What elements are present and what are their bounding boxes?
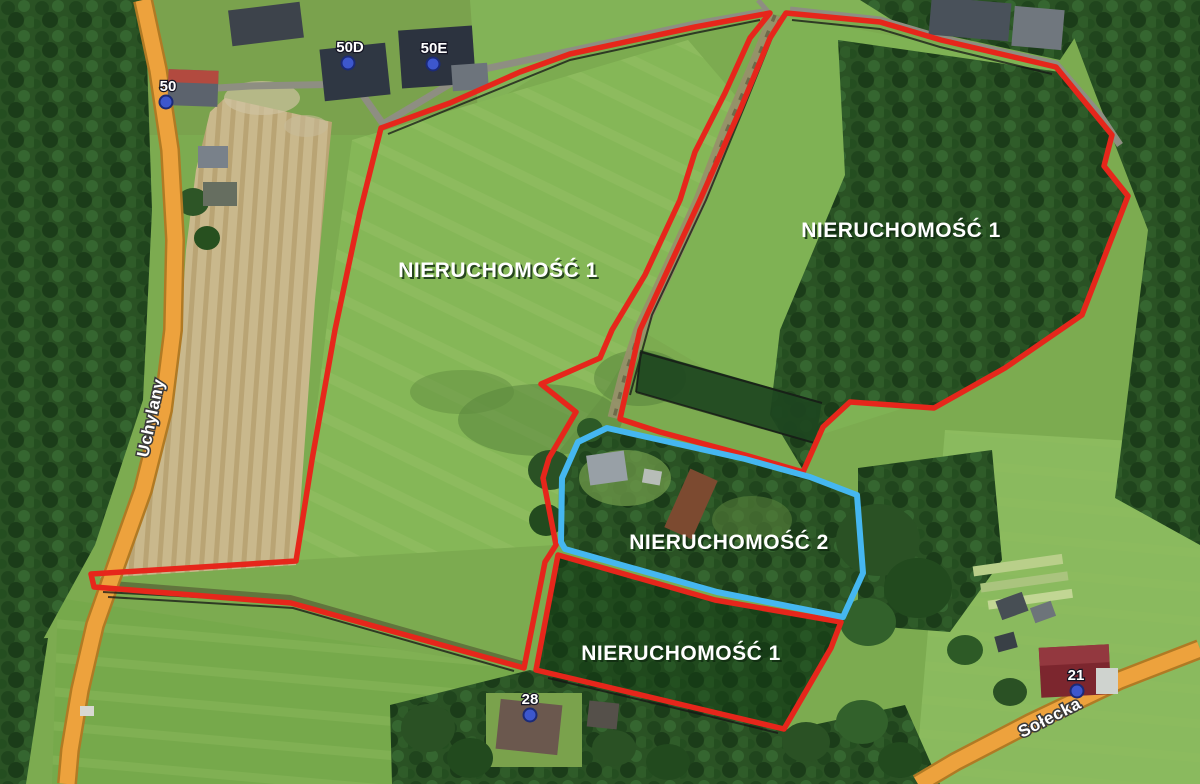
barn <box>1011 6 1064 50</box>
house-marker-label: 50 <box>160 78 177 95</box>
shed <box>587 701 620 730</box>
property1-right-label: NIERUCHOMOŚĆ 1 <box>801 218 1001 242</box>
house-marker-dot <box>342 57 355 70</box>
property1-left-label: NIERUCHOMOŚĆ 1 <box>398 258 598 282</box>
field-shadow <box>410 370 514 414</box>
house-marker-21: 21 <box>1068 667 1085 698</box>
shed <box>80 706 94 716</box>
house-marker-dot <box>427 58 440 71</box>
shed <box>203 182 237 206</box>
house-marker-28: 28 <box>522 691 539 722</box>
shed <box>198 146 228 168</box>
property2-label: NIERUCHOMOŚĆ 2 <box>629 530 829 554</box>
house-marker-dot <box>160 96 173 109</box>
house-marker-label: 50E <box>421 40 448 57</box>
shed-plot2 <box>586 451 628 486</box>
property1-bottom-label: NIERUCHOMOŚĆ 1 <box>581 641 781 665</box>
house-marker-label: 28 <box>522 691 539 708</box>
barn <box>928 0 1011 41</box>
terrace <box>1096 668 1118 694</box>
house-marker-label: 21 <box>1068 667 1085 684</box>
house-marker-dot <box>1071 685 1084 698</box>
house-marker-label: 50D <box>336 39 364 56</box>
map-canvas: Uchylany Sołecka NIERUCHOMOŚĆ 1 NIERUCHO… <box>0 0 1200 784</box>
building-21-roof <box>1039 644 1110 666</box>
aerial-map: Uchylany Sołecka NIERUCHOMOŚĆ 1 NIERUCHO… <box>0 0 1200 784</box>
house-marker-dot <box>524 709 537 722</box>
sand-patch <box>284 115 328 137</box>
